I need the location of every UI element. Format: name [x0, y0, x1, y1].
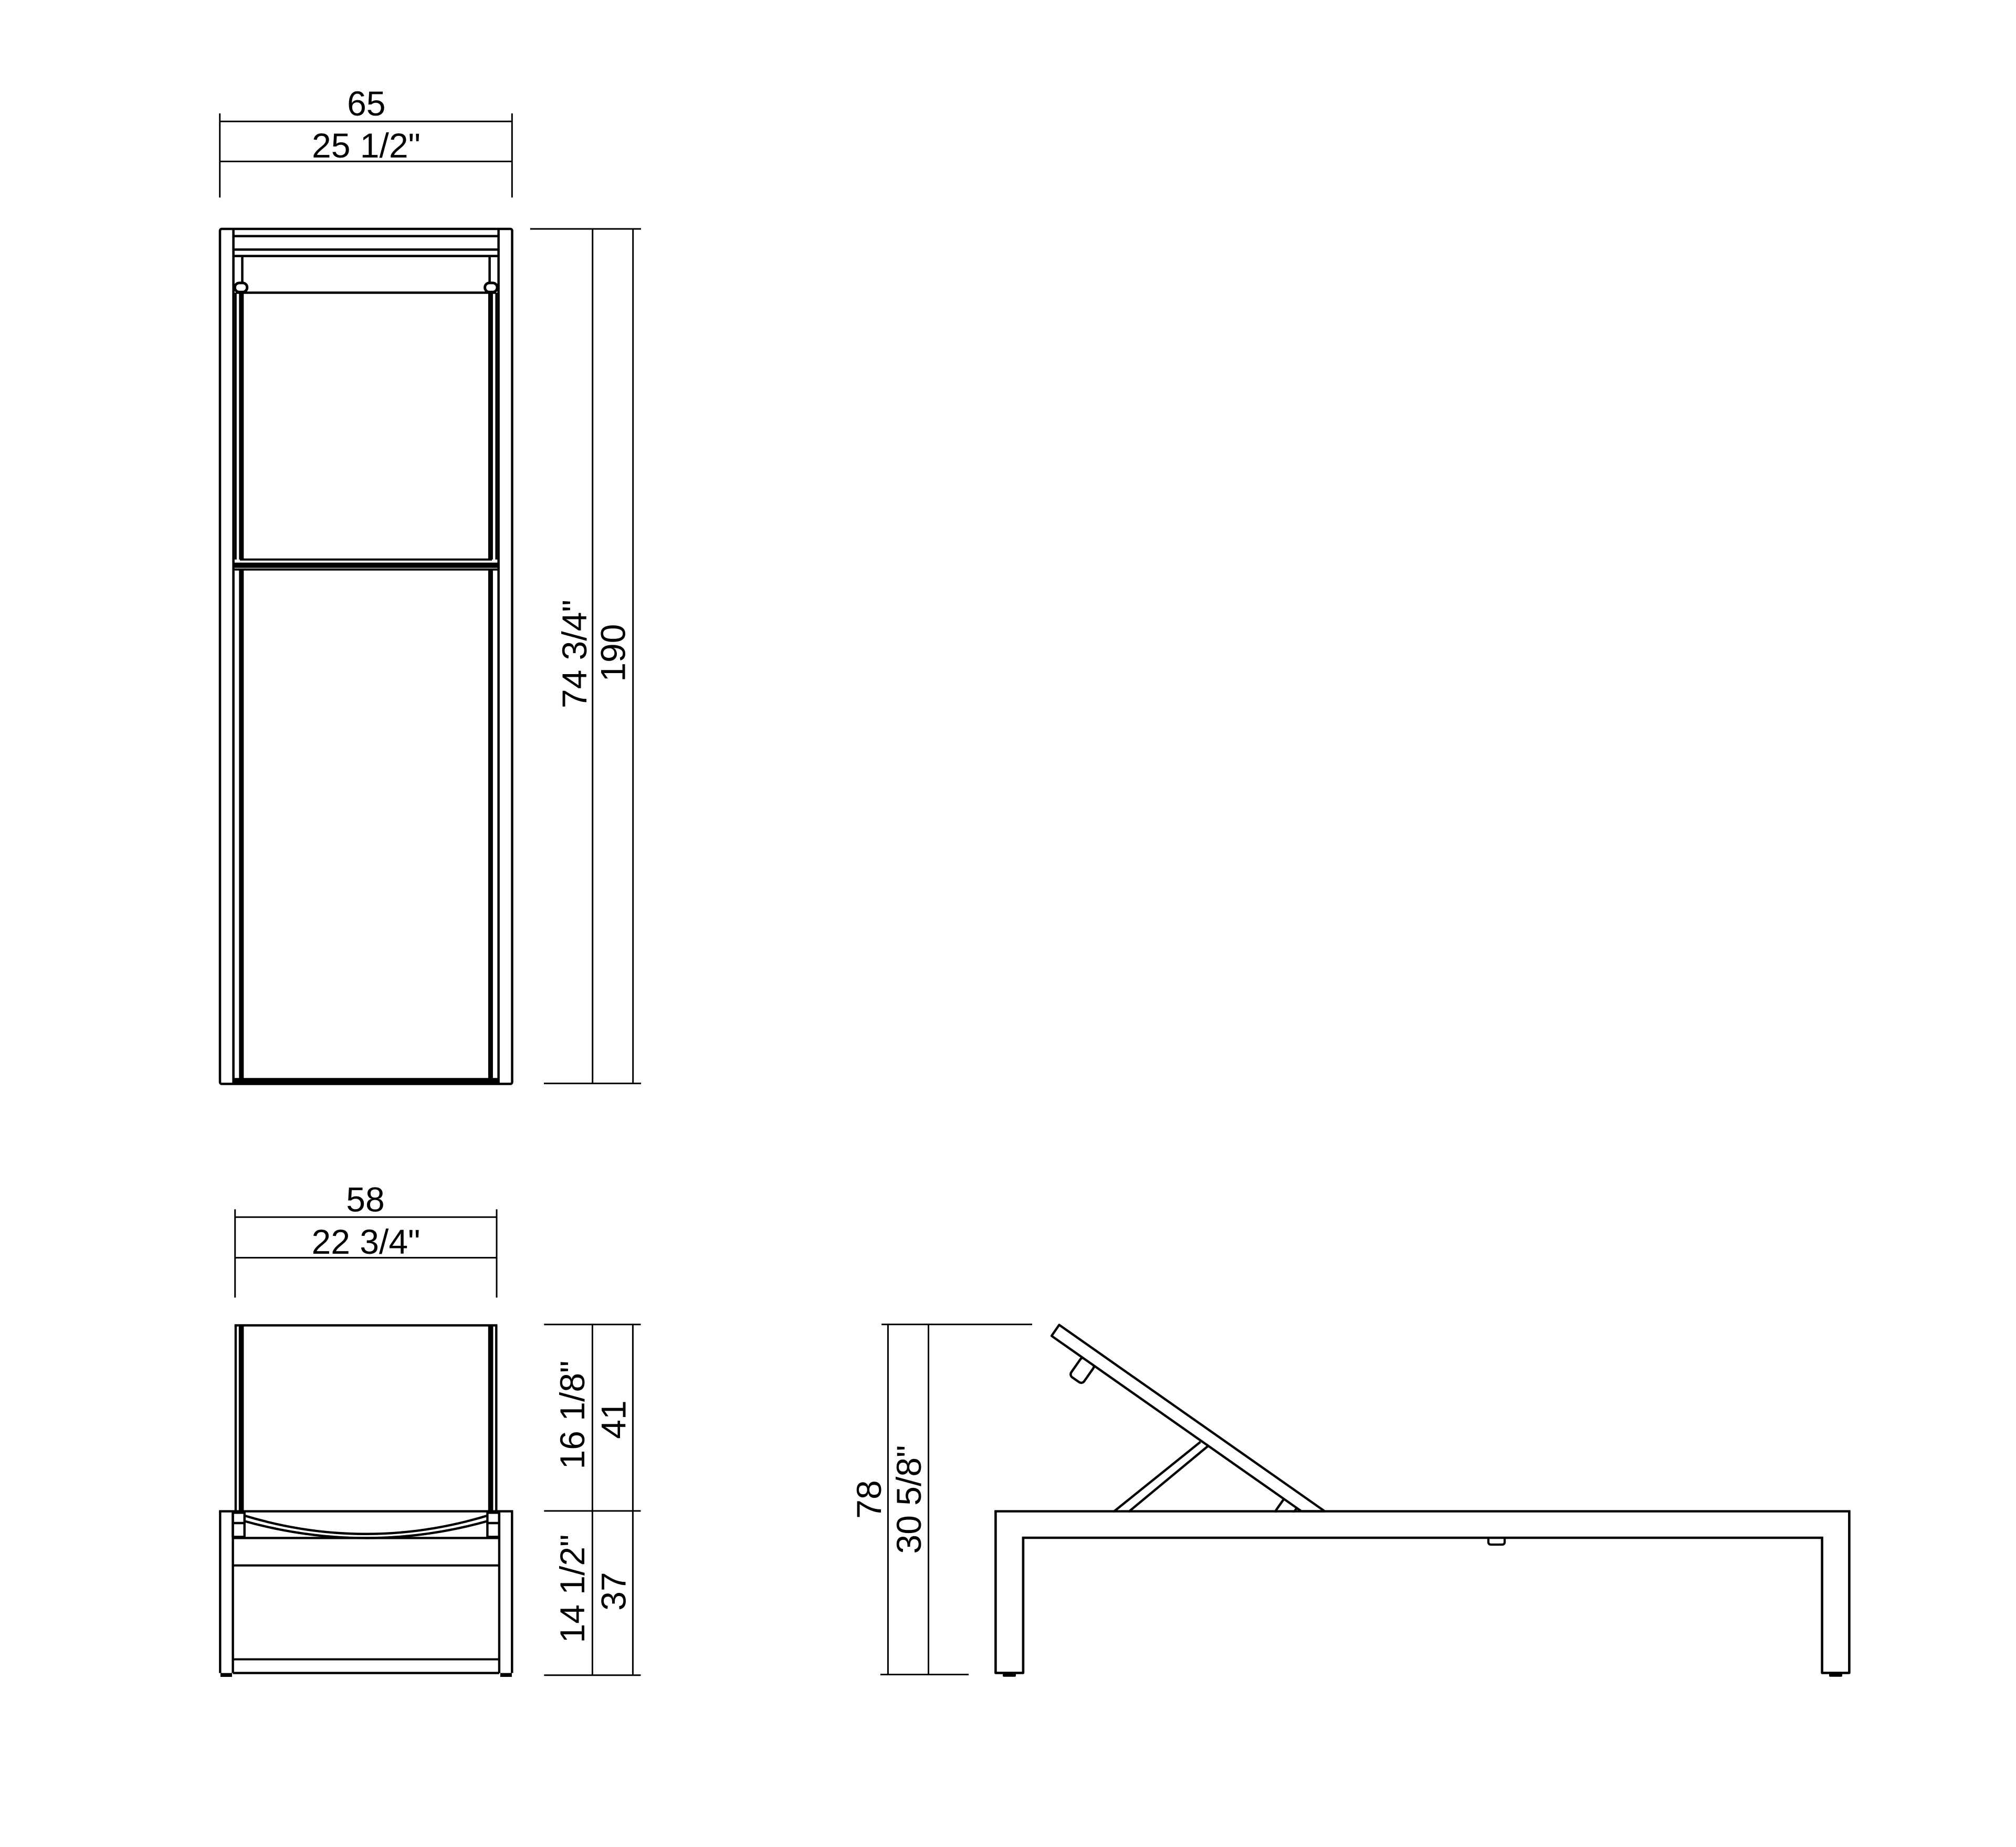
svg-text:14 1/2": 14 1/2": [553, 1535, 592, 1643]
svg-text:22 3/4": 22 3/4": [312, 1222, 421, 1261]
svg-text:78: 78: [849, 1480, 888, 1518]
svg-text:65: 65: [347, 84, 385, 123]
svg-text:37: 37: [594, 1572, 633, 1610]
svg-text:25 1/2": 25 1/2": [312, 126, 421, 165]
svg-text:74 3/4": 74 3/4": [555, 600, 594, 708]
svg-text:30 5/8": 30 5/8": [889, 1445, 928, 1554]
svg-text:16 1/8": 16 1/8": [553, 1361, 592, 1470]
svg-text:190: 190: [594, 624, 633, 682]
svg-text:58: 58: [346, 1180, 384, 1219]
svg-text:41: 41: [594, 1400, 633, 1439]
